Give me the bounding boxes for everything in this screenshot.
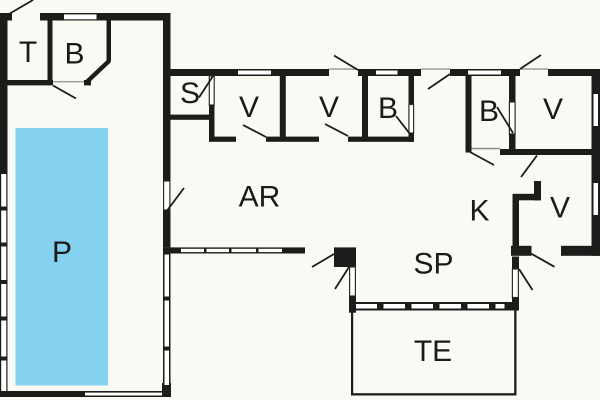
svg-text:K: K xyxy=(469,195,489,228)
svg-text:B: B xyxy=(479,95,499,128)
svg-text:V: V xyxy=(550,192,570,225)
svg-text:AR: AR xyxy=(239,181,281,214)
svg-text:SP: SP xyxy=(413,248,453,281)
svg-text:B: B xyxy=(378,92,398,125)
svg-text:S: S xyxy=(180,77,200,110)
svg-text:TE: TE xyxy=(414,335,452,368)
svg-text:B: B xyxy=(64,38,84,71)
svg-text:P: P xyxy=(52,236,72,269)
svg-text:T: T xyxy=(19,36,37,69)
svg-text:V: V xyxy=(319,91,339,124)
svg-text:V: V xyxy=(239,91,259,124)
svg-text:V: V xyxy=(543,93,563,126)
